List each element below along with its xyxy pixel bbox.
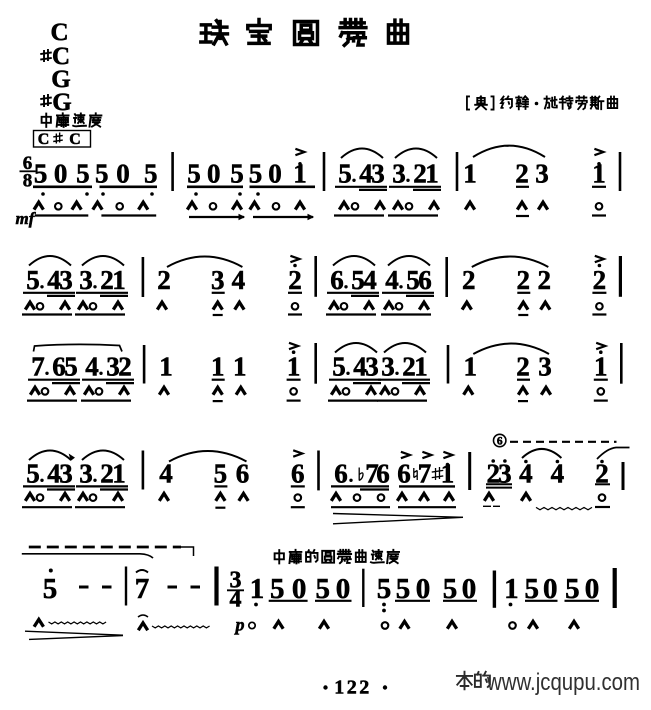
svg-text:1: 1: [594, 352, 608, 382]
svg-text:6: 6: [330, 265, 344, 295]
svg-text:0: 0: [54, 159, 68, 189]
svg-text:4: 4: [363, 265, 377, 295]
svg-text:5: 5: [187, 159, 201, 189]
svg-text:5: 5: [332, 352, 346, 382]
svg-text:5: 5: [377, 573, 392, 605]
svg-text:5: 5: [144, 159, 158, 189]
svg-text:4: 4: [230, 587, 242, 613]
svg-text:p: p: [234, 615, 245, 635]
svg-text:1: 1: [211, 352, 225, 382]
svg-text:C: C: [50, 19, 68, 46]
svg-text:6: 6: [418, 265, 432, 295]
svg-text:2: 2: [462, 265, 476, 295]
svg-text:C: C: [69, 131, 81, 148]
svg-text:7: 7: [135, 573, 150, 605]
svg-text:5: 5: [26, 265, 40, 295]
svg-text:3: 3: [538, 352, 552, 382]
svg-text:3: 3: [59, 265, 73, 295]
svg-text:2: 2: [593, 265, 607, 295]
svg-text:1: 1: [159, 352, 173, 382]
svg-text:5: 5: [95, 159, 109, 189]
svg-text:1: 1: [112, 265, 126, 295]
svg-text:3: 3: [381, 352, 395, 382]
svg-text:5: 5: [230, 159, 244, 189]
svg-text:1: 1: [414, 352, 428, 382]
svg-text:1: 1: [287, 352, 301, 382]
svg-text:4: 4: [385, 265, 399, 295]
svg-text:1: 1: [504, 573, 519, 605]
svg-text:G: G: [52, 89, 71, 116]
svg-text:0: 0: [207, 159, 221, 189]
svg-text:6: 6: [497, 436, 503, 448]
svg-text:3: 3: [392, 159, 406, 189]
svg-text:6: 6: [291, 459, 305, 489]
svg-text:1: 1: [464, 352, 478, 382]
svg-text:0: 0: [116, 159, 130, 189]
svg-text:www.jcqupu.com: www.jcqupu.com: [486, 669, 640, 696]
svg-text:1: 1: [112, 459, 126, 489]
svg-text:5: 5: [249, 159, 263, 189]
svg-text:5: 5: [43, 573, 58, 605]
svg-text:3: 3: [365, 352, 379, 382]
svg-text:6: 6: [376, 459, 390, 489]
svg-text:0: 0: [268, 159, 282, 189]
svg-text:1: 1: [233, 352, 247, 382]
svg-text:7: 7: [31, 352, 45, 382]
svg-text:5: 5: [338, 159, 352, 189]
svg-text:2: 2: [288, 265, 302, 295]
svg-text:6: 6: [236, 459, 250, 489]
svg-text:5: 5: [26, 459, 40, 489]
svg-text:6: 6: [397, 459, 411, 489]
svg-text:1: 1: [250, 573, 265, 605]
svg-text:5: 5: [64, 352, 78, 382]
svg-text:3: 3: [211, 265, 225, 295]
svg-text:122: 122: [334, 677, 372, 699]
svg-text:5: 5: [214, 459, 228, 489]
svg-text:5: 5: [76, 159, 90, 189]
svg-text:2: 2: [516, 352, 530, 382]
svg-text:6: 6: [334, 459, 348, 489]
svg-text:3: 3: [535, 159, 549, 189]
svg-text:1: 1: [463, 159, 477, 189]
svg-text:3: 3: [371, 159, 385, 189]
svg-text:2: 2: [538, 265, 552, 295]
svg-text:4: 4: [232, 265, 246, 295]
svg-text:3: 3: [79, 459, 93, 489]
svg-text:7: 7: [418, 459, 432, 489]
svg-text:5: 5: [34, 159, 48, 189]
svg-text:mf: mf: [16, 209, 37, 228]
svg-text:3: 3: [79, 265, 93, 295]
svg-text:2: 2: [118, 352, 132, 382]
svg-text:4: 4: [159, 459, 173, 489]
svg-text:8: 8: [23, 171, 33, 192]
svg-text:2: 2: [517, 265, 531, 295]
svg-text:C: C: [38, 131, 50, 148]
svg-text:1: 1: [425, 159, 439, 189]
svg-text:3: 3: [59, 459, 73, 489]
svg-text:2: 2: [157, 265, 171, 295]
svg-text:4: 4: [85, 352, 99, 382]
svg-text:2: 2: [515, 159, 529, 189]
